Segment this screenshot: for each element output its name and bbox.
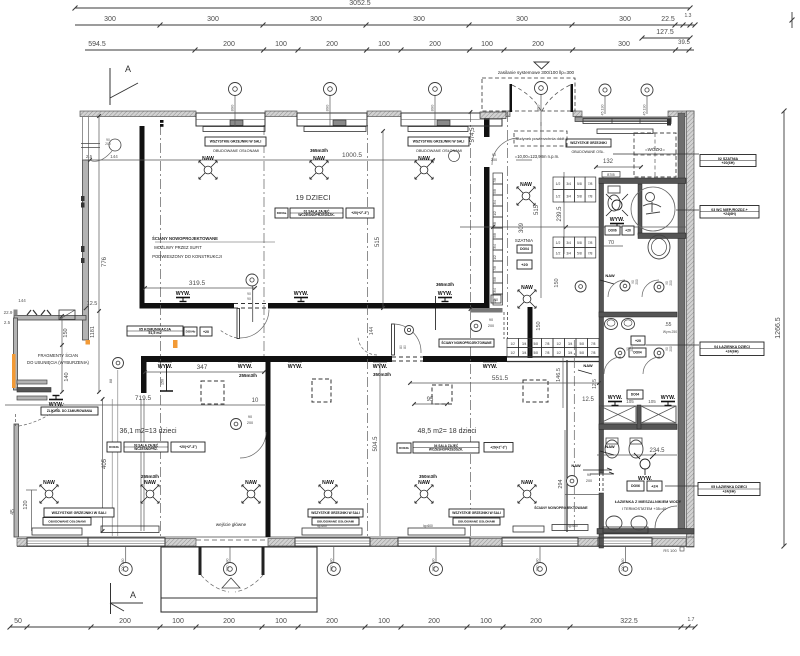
svg-text:ŚCIANY NOWOPROJEKTOWANE: ŚCIANY NOWOPROJEKTOWANE: [441, 340, 491, 345]
svg-text:lg=600: lg=600: [317, 524, 327, 528]
svg-text:144: 144: [369, 327, 375, 336]
svg-text:5/8: 5/8: [493, 189, 497, 194]
svg-text:90: 90: [489, 318, 493, 322]
svg-text:OBUDOWANE OSŁ.: OBUDOWANE OSŁ.: [571, 150, 604, 154]
svg-text:3/4: 3/4: [568, 351, 573, 355]
svg-text:OBUDOWANE OSŁONAMI: OBUDOWANE OSŁONAMI: [458, 520, 495, 524]
svg-text:200 180: 200 180: [536, 559, 540, 572]
svg-text:+20(+2°-3°): +20(+2°-3°): [490, 445, 507, 449]
svg-text:3/4: 3/4: [493, 200, 497, 205]
svg-text:100: 100: [275, 618, 287, 625]
svg-text:1/2: 1/2: [556, 195, 561, 199]
svg-text:200: 200: [669, 346, 673, 352]
svg-text:.55: .55: [665, 322, 672, 328]
svg-text:200: 200: [326, 41, 338, 48]
svg-text:1/2: 1/2: [556, 342, 561, 346]
svg-text:776: 776: [102, 256, 108, 267]
svg-text:890: 890: [325, 104, 330, 111]
svg-text:WSZYSTKIE GRZEJNIKI W SALI: WSZYSTKIE GRZEJNIKI W SALI: [311, 511, 360, 515]
svg-text:FRAGMENTY ŚCIAN: FRAGMENTY ŚCIAN: [38, 353, 78, 358]
svg-text:+20(+2°-3°): +20(+2°-3°): [179, 445, 197, 449]
svg-text:127.5: 127.5: [656, 29, 674, 36]
svg-text:574,5: 574,5: [470, 127, 476, 143]
svg-text:DO USUNIĘCIA (WYBURZENIA): DO USUNIĘCIA (WYBURZENIA): [27, 360, 89, 365]
svg-text:3/4: 3/4: [568, 342, 573, 346]
svg-text:NAW: NAW: [418, 480, 430, 486]
svg-text:105: 105: [648, 399, 656, 404]
svg-text:7/8: 7/8: [591, 351, 596, 355]
svg-text:405: 405: [102, 458, 108, 469]
svg-text:100: 100: [378, 41, 390, 48]
svg-text:890: 890: [536, 104, 541, 111]
svg-text:50: 50: [14, 618, 22, 625]
svg-text:12.5: 12.5: [582, 397, 594, 403]
svg-text:+20: +20: [635, 339, 641, 343]
svg-text:200: 200: [428, 618, 440, 625]
svg-text:200: 200: [105, 142, 111, 146]
svg-text:=10,00=123,98m n.p.m.: =10,00=123,98m n.p.m.: [515, 154, 559, 159]
svg-text:200: 200: [491, 158, 497, 162]
svg-text:A: A: [125, 64, 131, 74]
svg-text:WYW.: WYW.: [608, 395, 623, 401]
svg-text:+20(+2°-3°): +20(+2°-3°): [351, 211, 369, 215]
svg-text:100: 100: [480, 618, 492, 625]
svg-text:OBUDOWANE OSŁONAMI: OBUDOWANE OSŁONAMI: [213, 149, 259, 153]
svg-text:NAW: NAW: [571, 463, 581, 468]
svg-text:200 180: 200 180: [121, 559, 125, 572]
svg-text:150: 150: [536, 321, 542, 330]
svg-text:300: 300: [516, 16, 528, 23]
svg-text:WYW.: WYW.: [610, 217, 625, 223]
svg-text:200: 200: [635, 279, 639, 285]
svg-text:+24(6H): +24(6H): [722, 489, 736, 493]
svg-text:90: 90: [492, 153, 496, 157]
svg-text:300: 300: [619, 16, 631, 23]
svg-text:200: 200: [586, 479, 592, 483]
svg-text:890: 890: [430, 104, 435, 111]
svg-text:7/8: 7/8: [591, 342, 596, 346]
svg-text:5/8: 5/8: [533, 351, 538, 355]
svg-text:NAW: NAW: [605, 273, 615, 278]
svg-text:5/8: 5/8: [577, 182, 582, 186]
svg-text:551.5: 551.5: [492, 375, 509, 382]
svg-text:DO03a: DO03a: [277, 211, 287, 215]
svg-text:7/8: 7/8: [493, 266, 497, 271]
svg-text:WCZESNOPRZEDSZK.: WCZESNOPRZEDSZK.: [429, 447, 463, 451]
svg-text:200: 200: [669, 280, 673, 286]
svg-text:NAW: NAW: [583, 363, 593, 368]
svg-text:NAW: NAW: [313, 156, 325, 162]
svg-text:365m3/h: 365m3/h: [436, 282, 454, 287]
svg-text:3/4: 3/4: [493, 288, 497, 293]
svg-text:132: 132: [603, 159, 614, 165]
svg-text:200: 200: [530, 618, 542, 625]
svg-text:3052.5: 3052.5: [349, 0, 371, 7]
svg-text:WYW.: WYW.: [661, 395, 676, 401]
svg-text:WCZESNOPRZ.: WCZESNOPRZ.: [134, 447, 158, 451]
svg-text:2.5: 2.5: [86, 154, 93, 159]
svg-text:200: 200: [223, 41, 235, 48]
svg-text:lg=600: lg=600: [423, 524, 433, 528]
svg-text:NAW: NAW: [43, 480, 55, 486]
svg-text:3/4: 3/4: [522, 351, 527, 355]
svg-text:200 180: 200 180: [329, 559, 333, 572]
svg-text:70: 70: [608, 240, 614, 246]
svg-text:1/2: 1/2: [556, 182, 561, 186]
svg-text:NAW: NAW: [322, 480, 334, 486]
svg-text:150: 150: [554, 278, 560, 287]
svg-text:1/2: 1/2: [556, 252, 561, 256]
svg-text:890: 890: [230, 104, 235, 111]
svg-text:WCZESNOPRZEDSZK.: WCZESNOPRZEDSZK.: [298, 213, 335, 217]
svg-text:ŚCIANY NOWOPROJEKTOWANE: ŚCIANY NOWOPROJEKTOWANE: [534, 505, 588, 510]
svg-text:36,1 m2=13 dzieci: 36,1 m2=13 dzieci: [119, 428, 176, 435]
svg-text:NAW: NAW: [605, 444, 615, 449]
svg-text:I TERMOSTATEM +35=40: I TERMOSTATEM +35=40: [622, 507, 667, 511]
svg-text:200: 200: [488, 324, 494, 328]
svg-text:5/8: 5/8: [579, 351, 584, 355]
svg-text:7/8: 7/8: [545, 342, 550, 346]
svg-text:1/2: 1/2: [493, 211, 497, 216]
svg-text:51,5 m2: 51,5 m2: [148, 331, 161, 335]
svg-text:95: 95: [427, 397, 434, 403]
svg-text:200 180: 200 180: [226, 559, 230, 572]
svg-text:350m3/h: 350m3/h: [373, 372, 391, 377]
svg-text:WYW.: WYW.: [158, 364, 173, 370]
svg-text:100: 100: [378, 618, 390, 625]
svg-text:1/2: 1/2: [493, 299, 497, 304]
svg-text:OBUDOWANE OSŁONAMI: OBUDOWANE OSŁONAMI: [416, 149, 462, 153]
svg-text:5/8: 5/8: [577, 252, 582, 256]
svg-text:200: 200: [223, 618, 235, 625]
svg-text:1/2: 1/2: [556, 351, 561, 355]
svg-text:WYW.: WYW.: [438, 291, 453, 297]
svg-text:1.7: 1.7: [688, 617, 695, 623]
svg-text:1/2: 1/2: [510, 351, 515, 355]
svg-text:150: 150: [161, 379, 165, 385]
svg-text:5/8: 5/8: [577, 241, 582, 245]
svg-text:200: 200: [326, 618, 338, 625]
svg-text:5/8: 5/8: [579, 342, 584, 346]
svg-text:80: 80: [403, 345, 407, 349]
svg-text:3/4: 3/4: [566, 195, 571, 199]
svg-text:DO04b: DO04b: [186, 330, 196, 334]
svg-text:10: 10: [252, 398, 259, 404]
svg-text:1.3: 1.3: [685, 13, 692, 19]
svg-text:22.5: 22.5: [661, 16, 675, 23]
svg-text:3/4: 3/4: [566, 241, 571, 245]
svg-text:NAW: NAW: [245, 480, 257, 486]
svg-text:7/8: 7/8: [588, 252, 593, 256]
svg-text:zasilanie systemowe 300/100 ll: zasilanie systemowe 300/100 llp=300: [498, 70, 575, 75]
svg-text:OBUDOWANE OSŁONAMI: OBUDOWANE OSŁONAMI: [48, 519, 85, 523]
svg-text:3/4: 3/4: [522, 342, 527, 346]
svg-text:719.5: 719.5: [135, 395, 152, 402]
svg-text:239.5: 239.5: [557, 206, 563, 222]
svg-text:45 130: 45 130: [601, 105, 605, 116]
svg-text:12.5: 12.5: [87, 301, 98, 307]
svg-text:39.5: 39.5: [678, 40, 690, 46]
svg-text:150: 150: [63, 328, 69, 337]
svg-text:wejście główne: wejście główne: [216, 522, 247, 527]
svg-text:A: A: [130, 590, 136, 600]
svg-text:7/8: 7/8: [588, 182, 593, 186]
svg-text:7/8: 7/8: [545, 351, 550, 355]
svg-text:88: 88: [108, 378, 113, 383]
svg-text:DO06: DO06: [608, 229, 617, 233]
svg-text:NAW: NAW: [520, 182, 532, 188]
svg-text:1000.5: 1000.5: [342, 152, 362, 159]
svg-text:90: 90: [247, 297, 251, 301]
svg-text:1/2: 1/2: [556, 241, 561, 245]
svg-text:DO04: DO04: [631, 393, 640, 397]
svg-text:NAW: NAW: [521, 285, 533, 291]
svg-text:90: 90: [248, 415, 252, 419]
svg-text:100: 100: [275, 41, 287, 48]
svg-text:WYW.: WYW.: [483, 364, 498, 370]
svg-text:45: 45: [10, 509, 16, 515]
svg-text:45 130: 45 130: [643, 105, 647, 116]
svg-text:+20: +20: [203, 330, 209, 334]
svg-text:200: 200: [119, 618, 131, 625]
svg-text:200: 200: [247, 421, 253, 425]
svg-text:RS 100: RS 100: [663, 548, 677, 553]
svg-text:WSZYSTKIE GRZEJNIKI W SALI: WSZYSTKIE GRZEJNIKI W SALI: [210, 140, 262, 144]
svg-text:OBUDOWANE OSŁONAMI: OBUDOWANE OSŁONAMI: [317, 520, 354, 524]
svg-text:WSZYSTKIE GRZEJNIKI: WSZYSTKIE GRZEJNIKI: [570, 141, 607, 145]
svg-text:200: 200: [429, 41, 441, 48]
svg-text:+24: +24: [651, 483, 659, 488]
svg-text:=WÓZKI=: =WÓZKI=: [645, 146, 665, 152]
svg-text:234.5: 234.5: [649, 448, 665, 454]
svg-text:5/8: 5/8: [533, 342, 538, 346]
svg-text:NAW: NAW: [418, 156, 430, 162]
svg-text:+24(6H): +24(6H): [725, 349, 739, 353]
svg-text:144: 144: [18, 298, 26, 303]
svg-text:ŚCIANY NOWOPROJEKTOWANE: ŚCIANY NOWOPROJEKTOWANE: [152, 236, 218, 241]
svg-text:5/8: 5/8: [577, 195, 582, 199]
svg-text:322.5: 322.5: [620, 618, 638, 625]
svg-text:04 ŁAZIENKA DZIECI: 04 ŁAZIENKA DZIECI: [714, 345, 750, 349]
svg-text:100: 100: [172, 618, 184, 625]
svg-text:100: 100: [481, 41, 493, 48]
svg-text:144: 144: [110, 154, 118, 159]
svg-text:NAW: NAW: [521, 480, 533, 486]
svg-text:309: 309: [519, 222, 525, 233]
svg-text:PODWIESZONY DO KONSTRUKCJI: PODWIESZONY DO KONSTRUKCJI: [152, 254, 222, 259]
svg-text:504.5: 504.5: [373, 436, 379, 452]
svg-text:DO04: DO04: [520, 247, 529, 251]
svg-text:350m3/h: 350m3/h: [419, 474, 437, 479]
svg-text:DO04: DO04: [633, 351, 642, 355]
svg-text:DO06: DO06: [631, 484, 640, 488]
svg-text:1266.5: 1266.5: [775, 317, 782, 339]
svg-text:NAW: NAW: [202, 156, 214, 162]
svg-text:200 180: 200 180: [432, 559, 436, 572]
svg-text:SZATNIA: SZATNIA: [515, 238, 533, 243]
svg-text:WSZYSTKIE GRZEJNIKI W SALI: WSZYSTKIE GRZEJNIKI W SALI: [452, 511, 501, 515]
svg-text:140: 140: [64, 372, 70, 381]
svg-text:515: 515: [375, 236, 381, 247]
svg-text:347: 347: [197, 364, 208, 371]
svg-text:WSZYSTKIE GRZEJNIKI W SALI: WSZYSTKIE GRZEJNIKI W SALI: [52, 511, 107, 515]
svg-text:200: 200: [630, 346, 634, 352]
svg-text:WSZYSTKIE GRZEJNIKI W SALI: WSZYSTKIE GRZEJNIKI W SALI: [413, 140, 465, 144]
svg-text:+20(6H): +20(6H): [721, 161, 735, 165]
svg-text:120: 120: [23, 500, 29, 509]
svg-text:300: 300: [618, 41, 630, 48]
svg-text:3/4: 3/4: [566, 252, 571, 256]
svg-text:WYW.: WYW.: [294, 291, 309, 297]
svg-text:22.9: 22.9: [4, 310, 13, 315]
svg-text:+20: +20: [521, 262, 529, 267]
svg-text:5/8: 5/8: [493, 233, 497, 238]
svg-text:NAW: NAW: [144, 480, 156, 486]
svg-text:1181: 1181: [90, 326, 96, 338]
svg-text:MOŻLIWY PRZEZ SUFIT: MOŻLIWY PRZEZ SUFIT: [154, 245, 202, 250]
svg-text:365m3/h: 365m3/h: [310, 148, 328, 153]
svg-text:2.5: 2.5: [4, 320, 11, 325]
svg-text:300: 300: [207, 16, 219, 23]
svg-text:+24(6H): +24(6H): [723, 212, 736, 216]
svg-text:DO03b: DO03b: [399, 446, 409, 450]
svg-text:Budynek powierzchnia dddt: Budynek powierzchnia dddt: [516, 136, 566, 141]
svg-text:300: 300: [310, 16, 322, 23]
svg-text:515: 515: [534, 204, 540, 215]
svg-text:300: 300: [413, 16, 425, 23]
svg-text:3/4: 3/4: [566, 182, 571, 186]
svg-text:1/2: 1/2: [510, 342, 515, 346]
svg-text:1/2: 1/2: [493, 255, 497, 260]
svg-text:7/8: 7/8: [493, 178, 497, 183]
svg-text:12.5: 12.5: [592, 379, 598, 389]
svg-text:90: 90: [247, 292, 251, 296]
svg-text:WYW.: WYW.: [238, 364, 253, 370]
svg-text:200 180: 200 180: [621, 559, 625, 572]
svg-text:319.5: 319.5: [189, 280, 206, 287]
svg-text:200: 200: [532, 41, 544, 48]
svg-text:105: 105: [626, 399, 634, 404]
svg-text:WYW.: WYW.: [288, 364, 303, 370]
svg-text:5/8: 5/8: [493, 277, 497, 282]
svg-text:Wym.250: Wym.250: [663, 330, 677, 334]
svg-text:7/8: 7/8: [493, 222, 497, 227]
svg-text:300: 300: [104, 16, 116, 23]
svg-text:7/8: 7/8: [588, 195, 593, 199]
svg-text:255m3/h: 255m3/h: [141, 474, 159, 479]
svg-text:ŁAZIENKA Z MIESZALNIKIEM WODY: ŁAZIENKA Z MIESZALNIKIEM WODY: [615, 500, 682, 504]
svg-text:146.5: 146.5: [556, 368, 562, 382]
svg-text:7/8: 7/8: [588, 241, 593, 245]
svg-text:3/4: 3/4: [493, 244, 497, 249]
svg-text:DO03b: DO03b: [109, 445, 119, 449]
svg-text:594.5: 594.5: [88, 41, 106, 48]
svg-text:19 DZIECI: 19 DZIECI: [295, 193, 330, 202]
svg-text:255m3/h: 255m3/h: [239, 373, 257, 378]
svg-text:WYW.: WYW.: [176, 291, 191, 297]
svg-text:294: 294: [558, 479, 564, 488]
svg-text:B705: B705: [607, 173, 615, 177]
svg-text:48,5 m2= 18 dzieci: 48,5 m2= 18 dzieci: [418, 428, 477, 435]
svg-text:+20: +20: [625, 229, 631, 233]
